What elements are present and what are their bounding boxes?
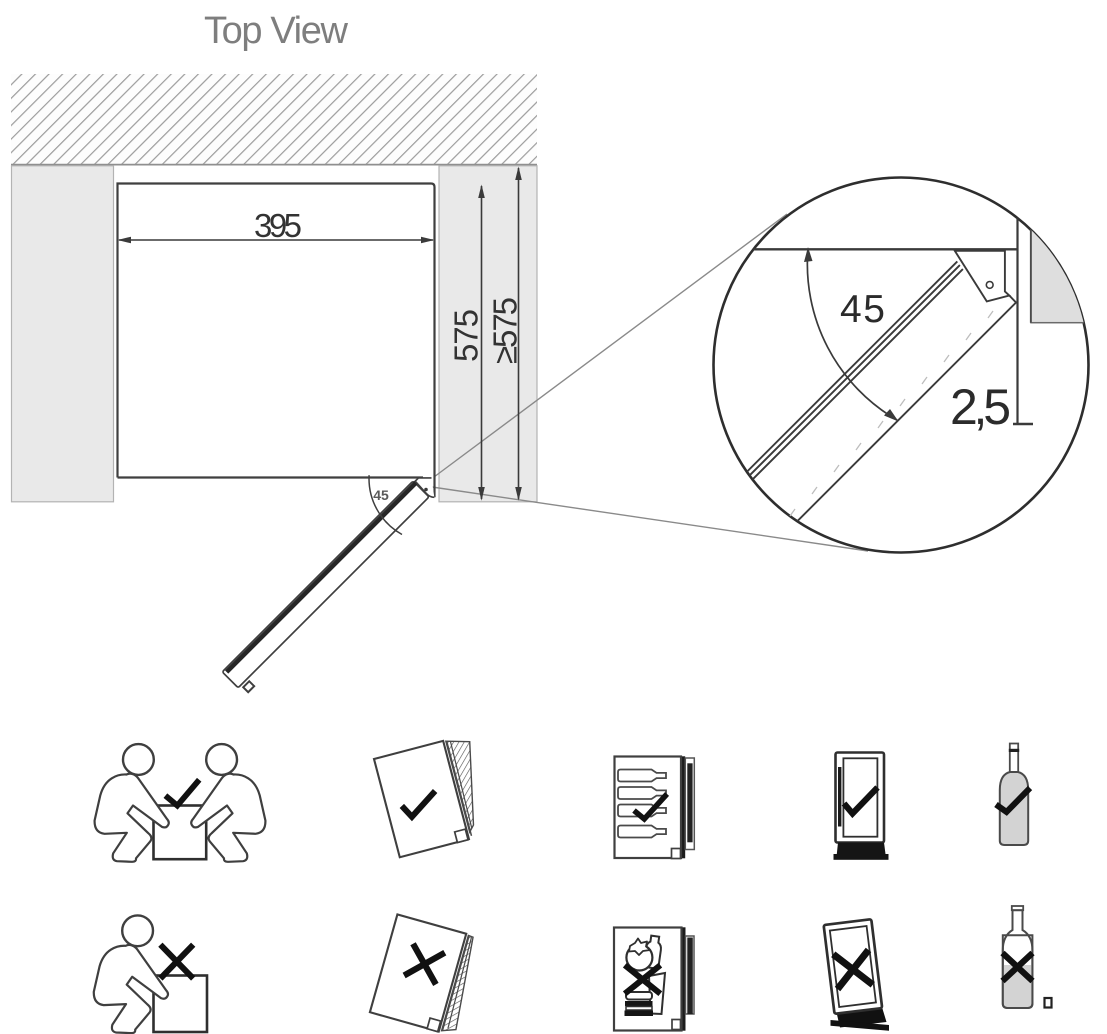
svg-text:395: 395 bbox=[254, 207, 302, 244]
svg-text:≥575: ≥575 bbox=[487, 297, 524, 364]
svg-text:Top View: Top View bbox=[204, 10, 349, 52]
svg-text:45: 45 bbox=[840, 288, 885, 331]
svg-text:575: 575 bbox=[448, 309, 485, 362]
svg-text:45: 45 bbox=[373, 487, 389, 503]
svg-text:2,5: 2,5 bbox=[950, 379, 1011, 435]
